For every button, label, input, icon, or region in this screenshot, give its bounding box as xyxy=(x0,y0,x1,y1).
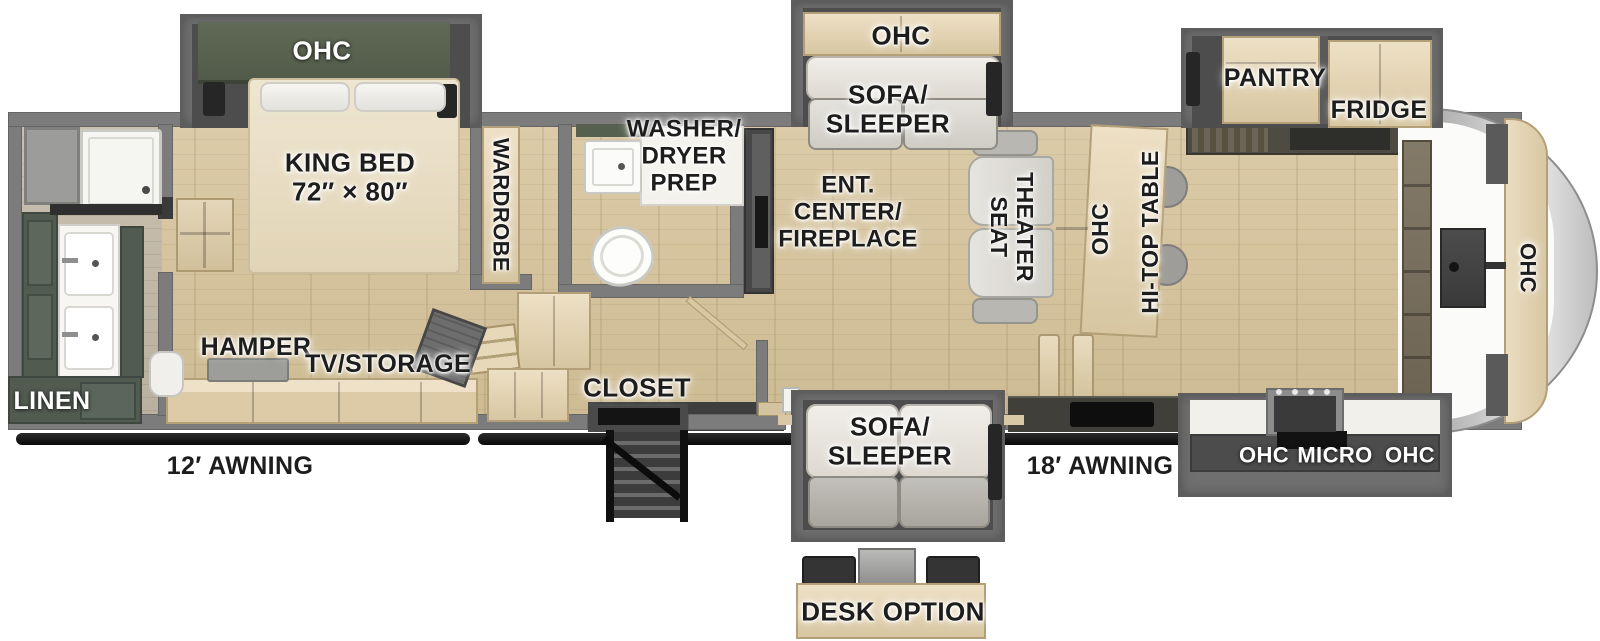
bottom-wall-2 xyxy=(688,414,786,430)
vanity-sink-1-faucet xyxy=(62,258,78,263)
kitchen-hood xyxy=(1290,128,1390,150)
sill-right-of-sofa xyxy=(1004,415,1024,425)
sofa-bottom-seat-left xyxy=(808,476,899,528)
closet-dresser-seam1 xyxy=(514,372,516,418)
kitchen-ohc-left-label: OHC xyxy=(1239,444,1289,469)
laundry-basket xyxy=(149,351,184,397)
shower-wall-block xyxy=(24,127,80,205)
vanity-sink-1 xyxy=(64,232,114,296)
kitchen-micro-label: MICRO xyxy=(1297,444,1372,469)
midbath-left-wall xyxy=(558,124,572,298)
cap-dark-block-bottom xyxy=(1486,354,1508,416)
front-tv xyxy=(1440,228,1486,308)
shower-drain xyxy=(142,186,150,194)
hitop-bench-stool-1 xyxy=(1038,334,1060,404)
vanity-sink-2-drain xyxy=(92,334,99,341)
top-wall-1 xyxy=(8,112,182,127)
hitop-bench-stool-2 xyxy=(1072,334,1094,404)
sill-left-of-sofa xyxy=(778,415,792,425)
stove-knob-3 xyxy=(1308,389,1314,395)
king-slide-window-left xyxy=(203,82,225,116)
ent-center-label: ENT. CENTER/ FIREPLACE xyxy=(778,171,918,252)
front-ohc-label: OHC xyxy=(1515,243,1540,293)
hamper-label: HAMPER xyxy=(201,333,312,361)
closet-dresser-seam2 xyxy=(541,372,543,418)
hi-top-table-label: HI-TOP TABLE xyxy=(1137,150,1163,313)
sofa-top-label: SOFA/ SLEEPER xyxy=(826,81,950,140)
pantry-label: PANTRY xyxy=(1224,64,1326,92)
tv-storage-label: TV/STORAGE xyxy=(305,350,471,378)
dresser-seam-3 xyxy=(420,382,422,422)
vanity-sink-2 xyxy=(64,306,114,370)
closet-label: CLOSET xyxy=(583,373,691,402)
cooktop xyxy=(1274,396,1336,432)
vanity-sink-2-faucet xyxy=(62,332,78,337)
fridge-label: FRIDGE xyxy=(1331,96,1428,124)
washer-dryer-label: WASHER/ DRYER PREP xyxy=(627,115,742,196)
sofa-top-window xyxy=(986,62,1002,116)
king-bed-pillow-right xyxy=(354,82,446,112)
entry-mat xyxy=(598,408,680,425)
entry-stairs xyxy=(606,430,688,522)
pantry-slide-window xyxy=(1186,52,1200,106)
dresser-seam-2 xyxy=(338,382,340,422)
vanity-side-cabinet xyxy=(120,226,144,378)
fireplace xyxy=(755,196,768,248)
closet-dresser xyxy=(487,368,569,422)
desk-chair-right xyxy=(926,556,980,586)
desk-monitor xyxy=(858,548,916,586)
theater-seat-back-seam xyxy=(1056,227,1088,230)
stair-rail-right xyxy=(680,430,688,522)
dinette-ohc-label: OHC xyxy=(1087,203,1113,255)
front-tv-arm xyxy=(1484,262,1506,269)
awning-left-label: 12′ AWNING xyxy=(167,452,314,480)
wd-sink-drain xyxy=(618,163,625,170)
theater-seat-label: THEATER SEAT xyxy=(986,172,1038,282)
shower-curb xyxy=(50,204,162,215)
sofa-bottom-seat-right xyxy=(899,476,990,528)
bedroom-hall-wall xyxy=(470,124,482,286)
shower-pan-inner xyxy=(88,137,154,205)
bath-tall-cabinet-panel2 xyxy=(27,294,53,360)
awning-right-label: 18′ AWNING xyxy=(1027,452,1174,480)
door-seam-h xyxy=(180,232,230,235)
peninsula-sink xyxy=(1070,402,1154,427)
desk-chair-left xyxy=(802,556,856,586)
closet-cabinet-seam xyxy=(553,296,555,366)
stove-knob-2 xyxy=(1292,389,1298,395)
rv-floorplan: OHC KING BED 72″ × 80″ WARDROBE LINEN HA… xyxy=(0,0,1600,641)
vanity-sink-1-drain xyxy=(92,260,99,267)
wardrobe-label: WARDROBE xyxy=(488,138,513,272)
bedroom-dresser xyxy=(166,378,478,424)
cap-cabinet-seams xyxy=(1404,144,1430,392)
sofa-top-ohc-label: OHC xyxy=(872,21,931,50)
sofa-bottom-window xyxy=(988,424,1002,500)
sofa-bottom-label: SOFA/ SLEEPER xyxy=(828,413,952,472)
door-seam-v xyxy=(203,202,206,268)
bedroom-ohc-label: OHC xyxy=(293,36,352,65)
awning-bar-left xyxy=(16,433,470,445)
bath-tall-cabinet-panel xyxy=(27,220,53,286)
linen-label: LINEN xyxy=(14,387,91,415)
cap-dark-block-top xyxy=(1486,124,1508,184)
stove-knob-1 xyxy=(1276,389,1282,395)
desk-option-label: DESK OPTION xyxy=(801,597,985,626)
front-tv-knob xyxy=(1449,262,1459,272)
king-bed-label: KING BED 72″ × 80″ xyxy=(285,149,415,208)
dresser-seam-1 xyxy=(252,382,254,422)
king-bed-pillow-left xyxy=(260,82,350,112)
theater-seat-arm-bottom xyxy=(972,298,1038,324)
stove-knob-4 xyxy=(1324,389,1330,395)
hamper-box xyxy=(207,358,289,382)
kitchen-ohc-right-label: OHC xyxy=(1385,444,1435,469)
kitchen-counter-items xyxy=(1192,128,1268,152)
